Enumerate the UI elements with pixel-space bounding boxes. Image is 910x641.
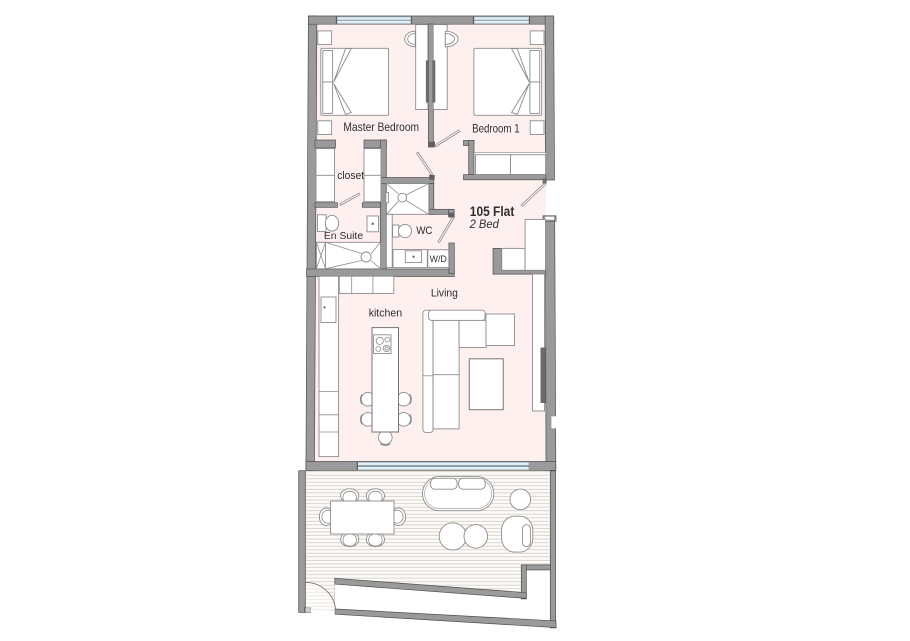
svg-text:W/D: W/D bbox=[430, 254, 448, 264]
svg-text:2 Bed: 2 Bed bbox=[469, 217, 500, 231]
svg-text:En Suite: En Suite bbox=[324, 231, 364, 242]
svg-text:WC: WC bbox=[416, 225, 432, 237]
svg-text:closet: closet bbox=[337, 170, 364, 182]
svg-text:Living: Living bbox=[431, 288, 458, 300]
svg-text:Master Bedroom: Master Bedroom bbox=[343, 120, 419, 134]
svg-text:kitchen: kitchen bbox=[369, 308, 402, 320]
svg-text:Bedroom 1: Bedroom 1 bbox=[472, 122, 520, 136]
